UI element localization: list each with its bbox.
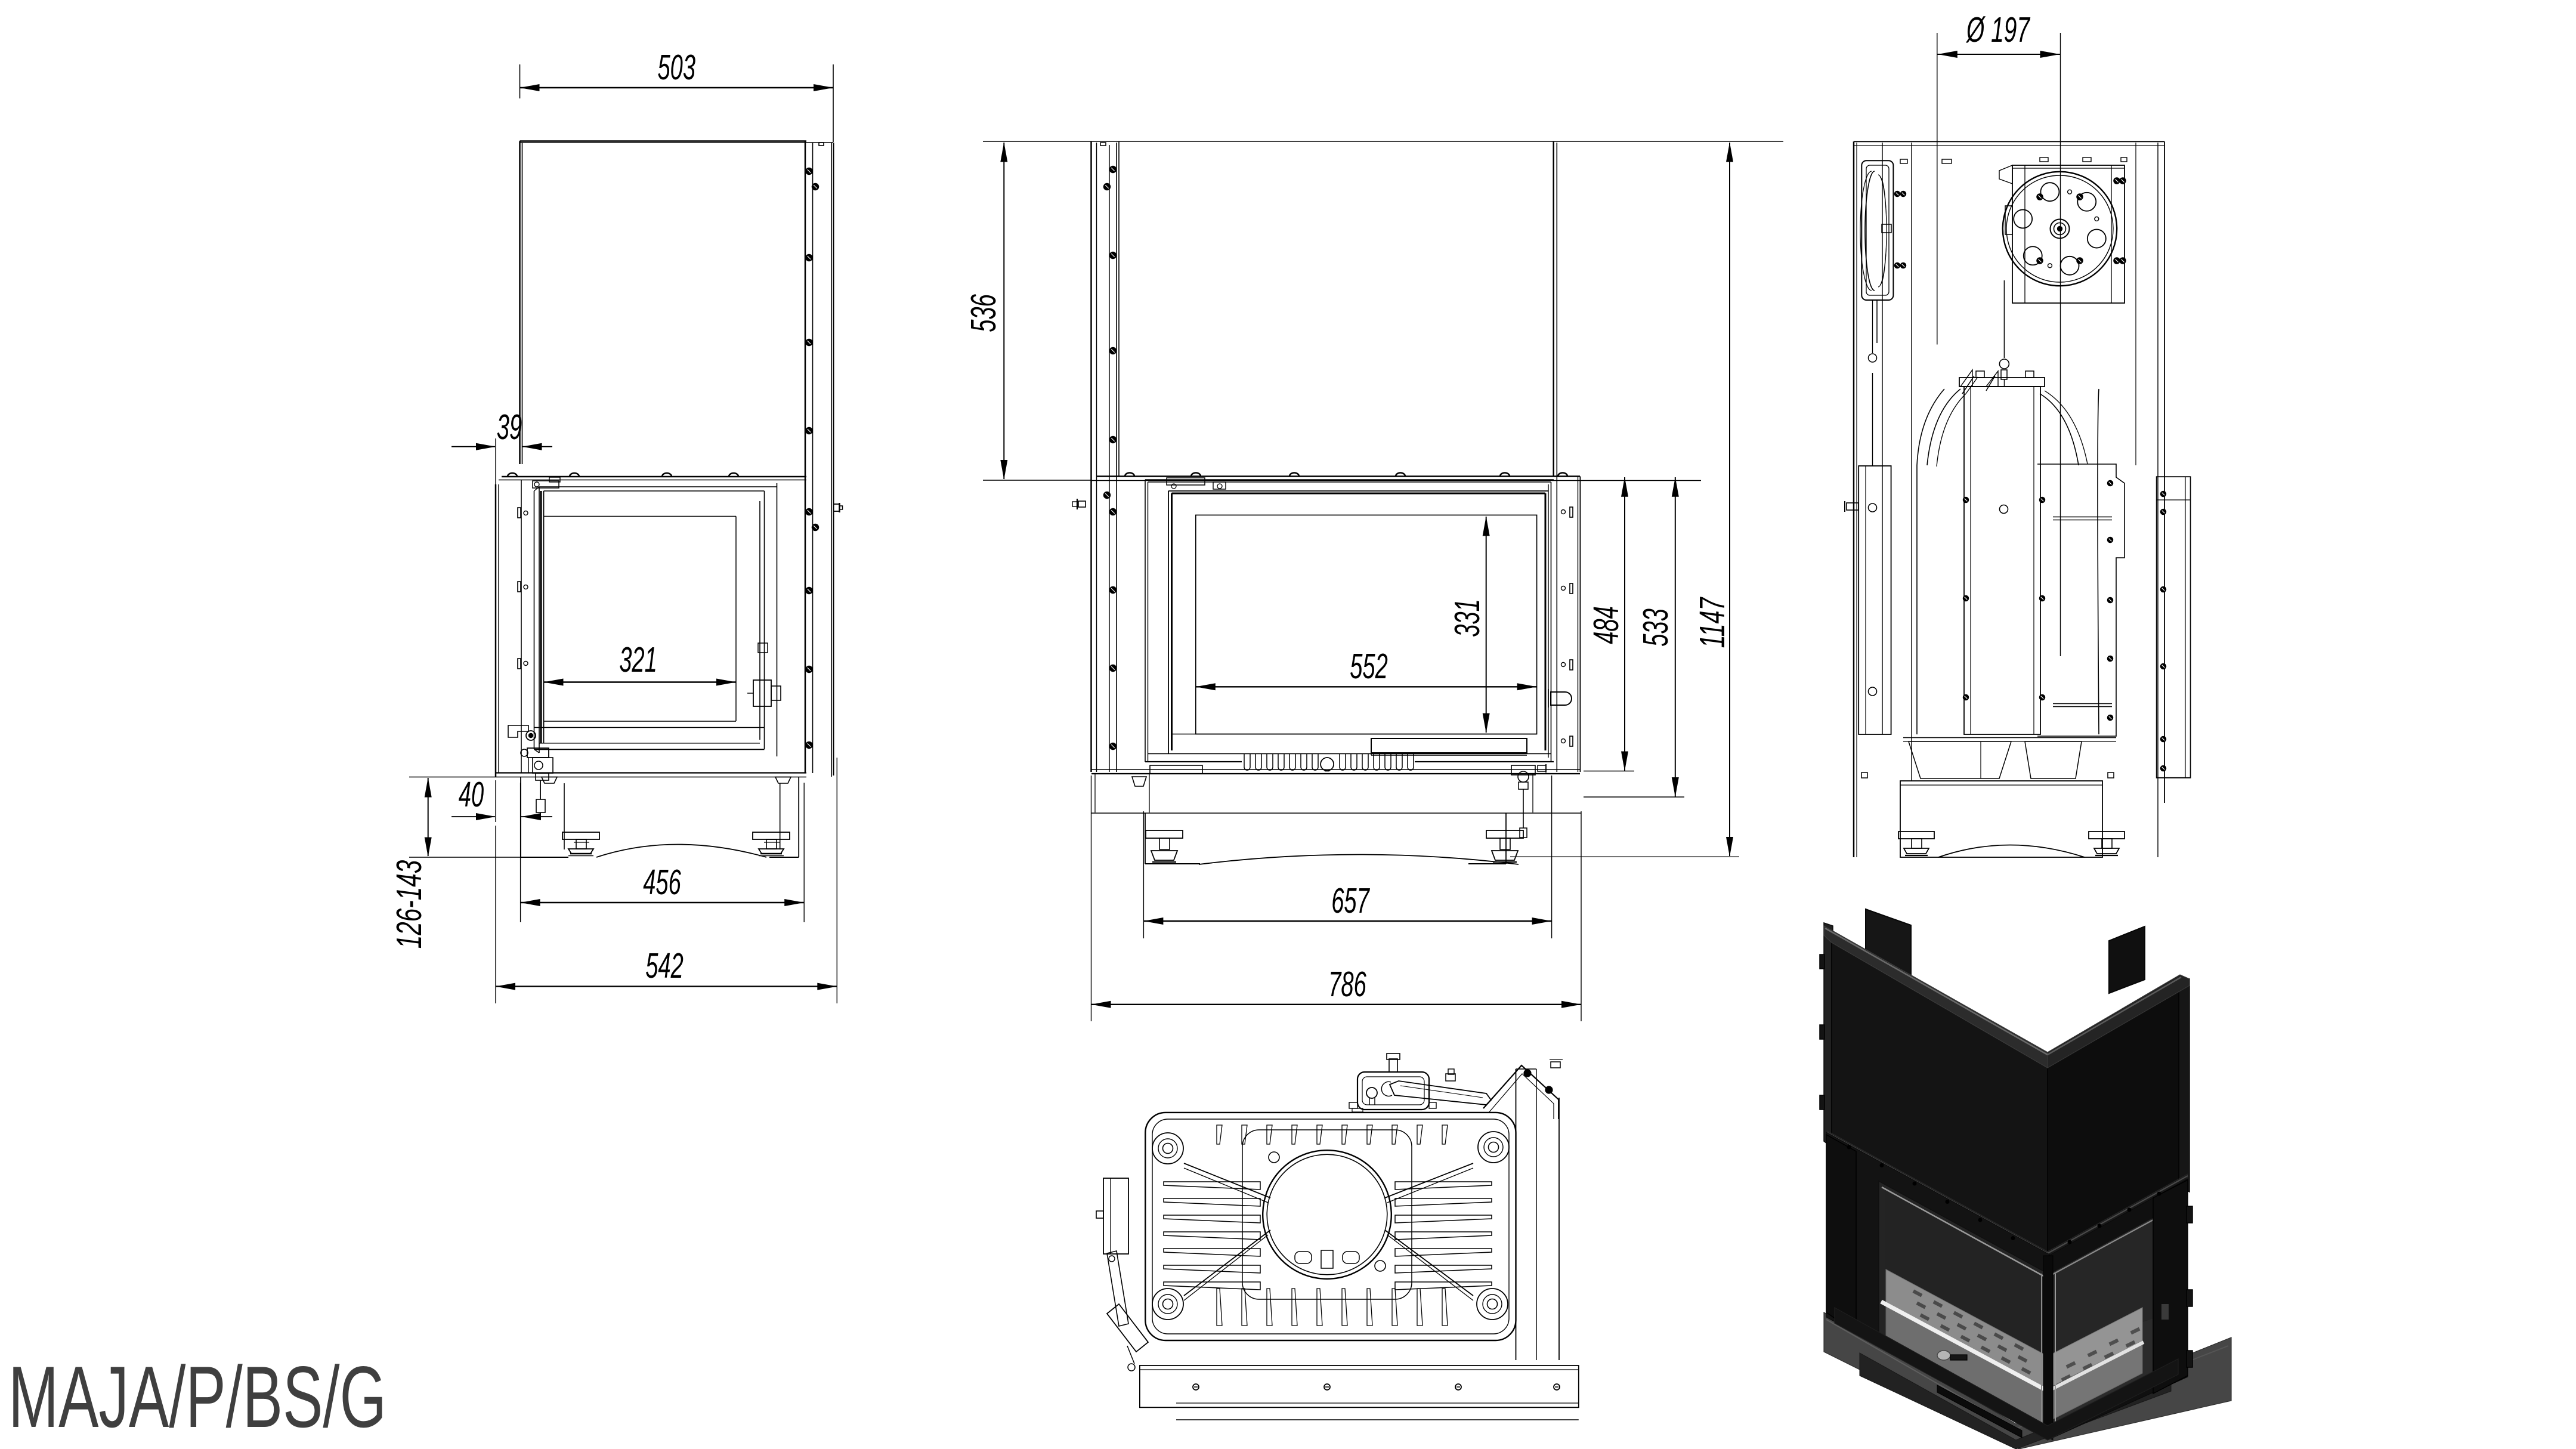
svg-text:MAJA/P/BS/G: MAJA/P/BS/G xyxy=(8,1348,386,1445)
svg-text:542: 542 xyxy=(645,946,684,985)
svg-text:39: 39 xyxy=(497,407,522,447)
svg-text:126-143: 126-143 xyxy=(389,860,429,949)
svg-text:1147: 1147 xyxy=(1693,597,1732,648)
svg-text:552: 552 xyxy=(1350,647,1388,686)
svg-text:331: 331 xyxy=(1448,599,1487,637)
svg-text:533: 533 xyxy=(1636,608,1675,647)
svg-text:Ø 197: Ø 197 xyxy=(1966,10,2031,50)
svg-text:40: 40 xyxy=(459,775,484,814)
svg-text:321: 321 xyxy=(619,640,657,679)
svg-text:503: 503 xyxy=(657,48,695,87)
svg-text:484: 484 xyxy=(1587,606,1626,644)
svg-text:456: 456 xyxy=(643,863,681,902)
svg-text:657: 657 xyxy=(1331,881,1370,920)
svg-text:536: 536 xyxy=(964,294,1003,332)
svg-text:786: 786 xyxy=(1328,965,1366,1004)
